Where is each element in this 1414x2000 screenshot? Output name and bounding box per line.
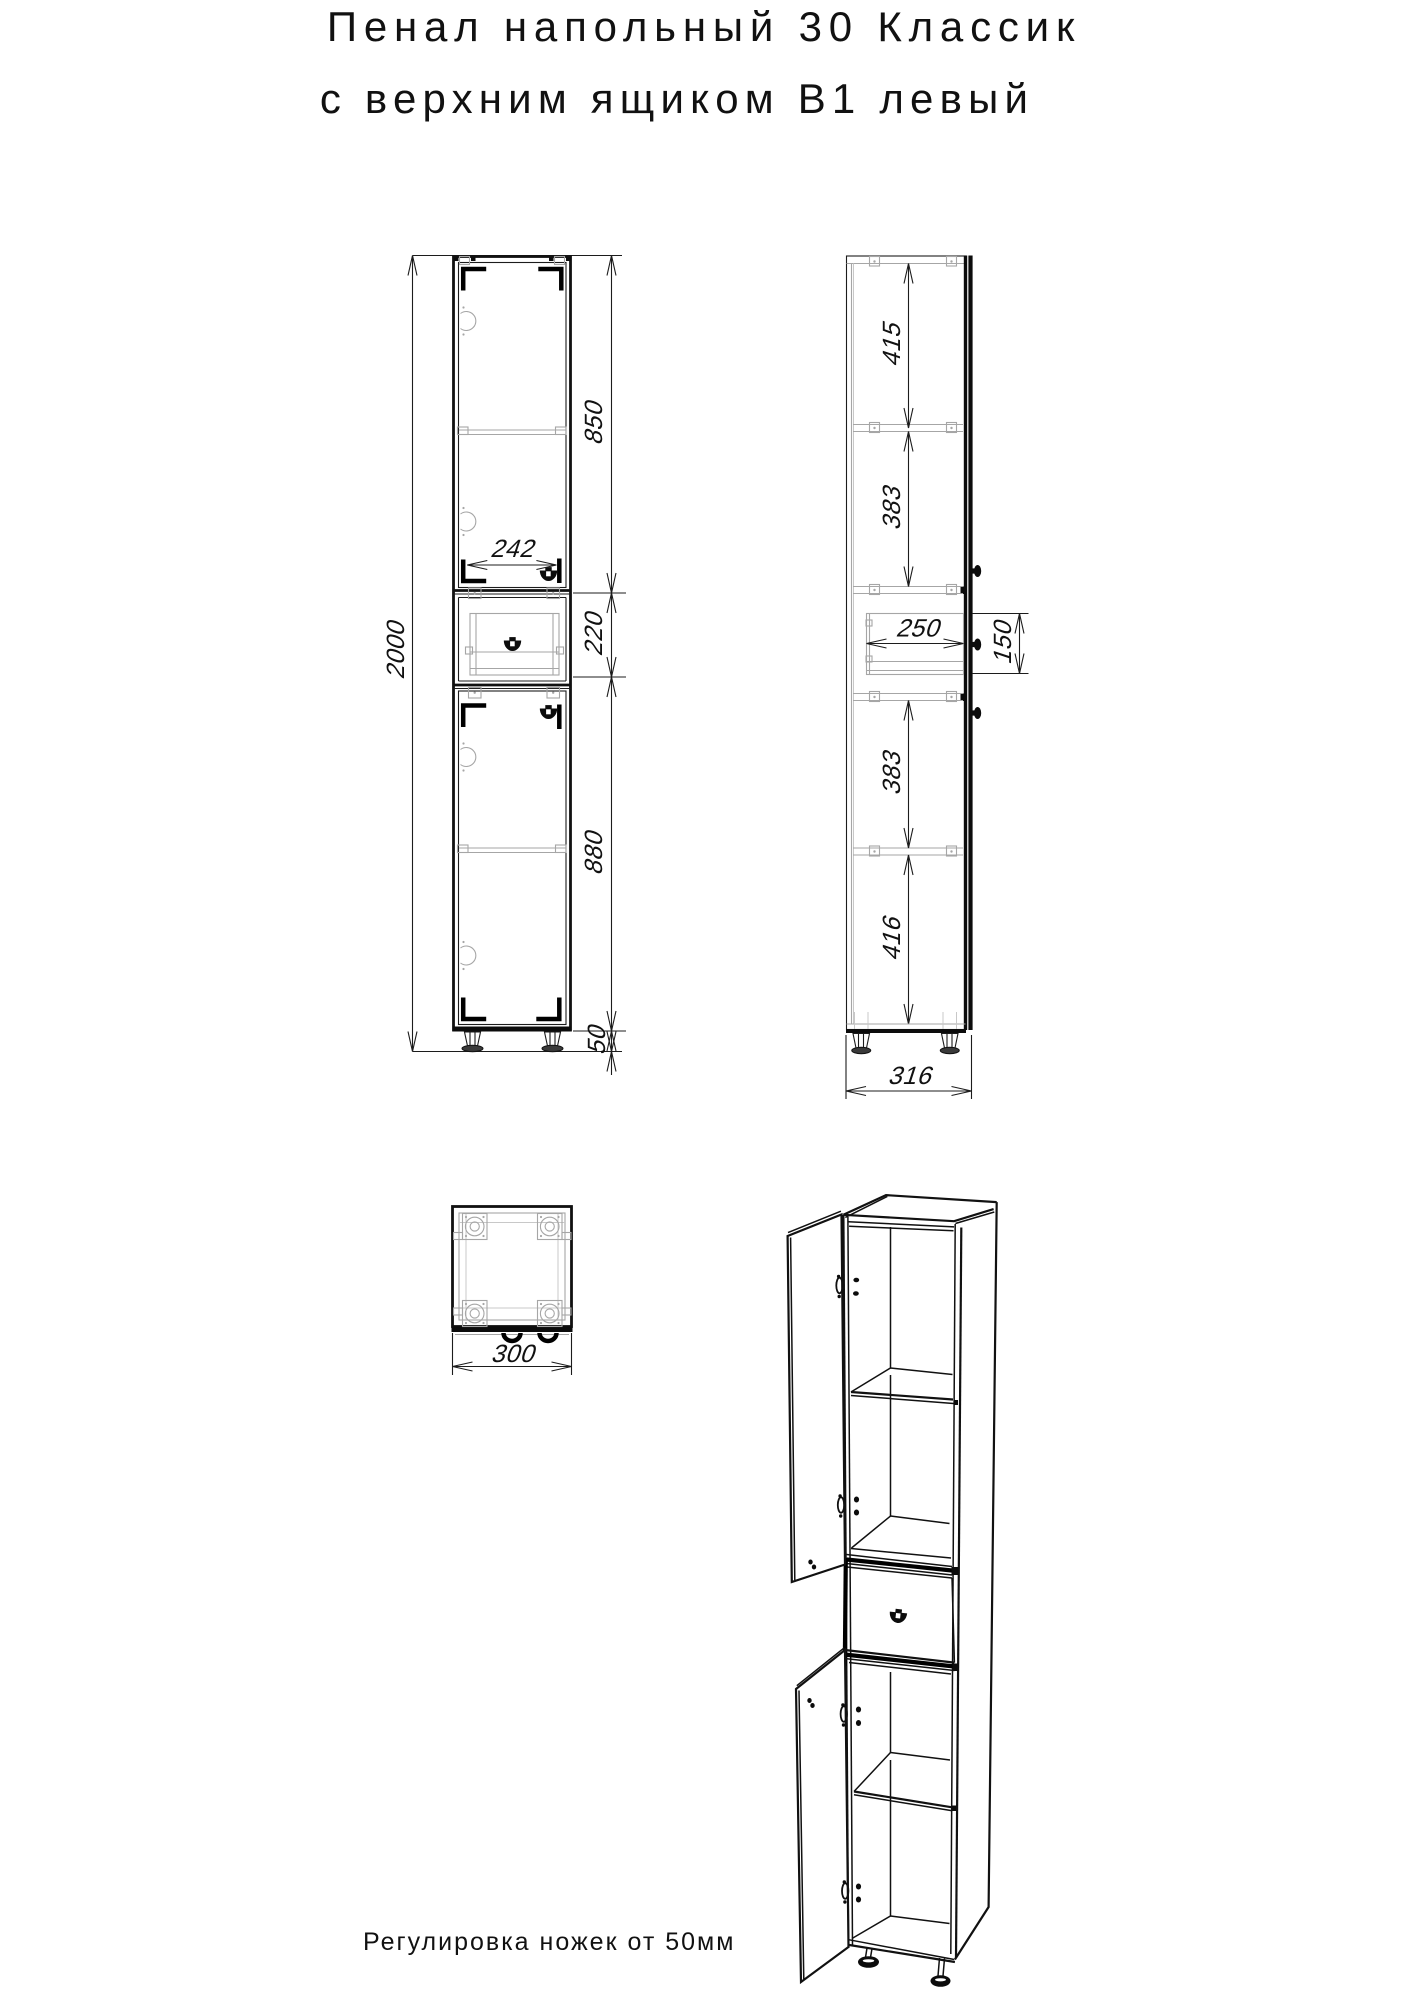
- svg-text:416: 416: [879, 911, 906, 963]
- svg-text:850: 850: [581, 395, 608, 447]
- svg-text:880: 880: [581, 825, 608, 877]
- svg-text:316: 316: [885, 1063, 937, 1090]
- svg-text:с верхним ящиком В1 левый: с верхним ящиком В1 левый: [320, 75, 1034, 122]
- svg-text:242: 242: [488, 536, 540, 563]
- svg-text:383: 383: [879, 745, 906, 797]
- svg-text:383: 383: [879, 480, 906, 532]
- svg-text:415: 415: [879, 317, 906, 369]
- svg-text:150: 150: [990, 615, 1017, 667]
- svg-text:250: 250: [893, 615, 945, 642]
- svg-text:220: 220: [581, 606, 608, 658]
- svg-text:Регулировка ножек от 50мм: Регулировка ножек от 50мм: [363, 1928, 735, 1956]
- svg-text:300: 300: [488, 1341, 540, 1368]
- svg-text:Пенал напольный 30 Классик: Пенал напольный 30 Классик: [327, 3, 1081, 50]
- svg-text:2000: 2000: [383, 615, 410, 681]
